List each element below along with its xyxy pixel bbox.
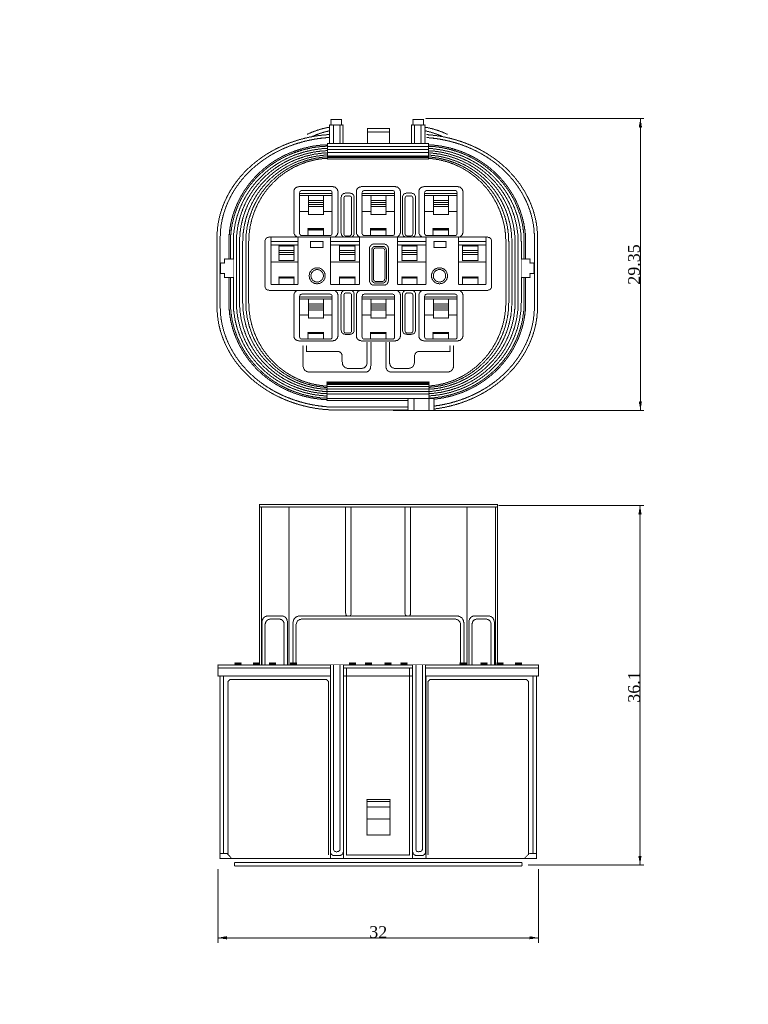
svg-text:29.35: 29.35 [624,244,644,285]
svg-text:32: 32 [369,922,387,942]
svg-text:36.1: 36.1 [624,671,644,703]
